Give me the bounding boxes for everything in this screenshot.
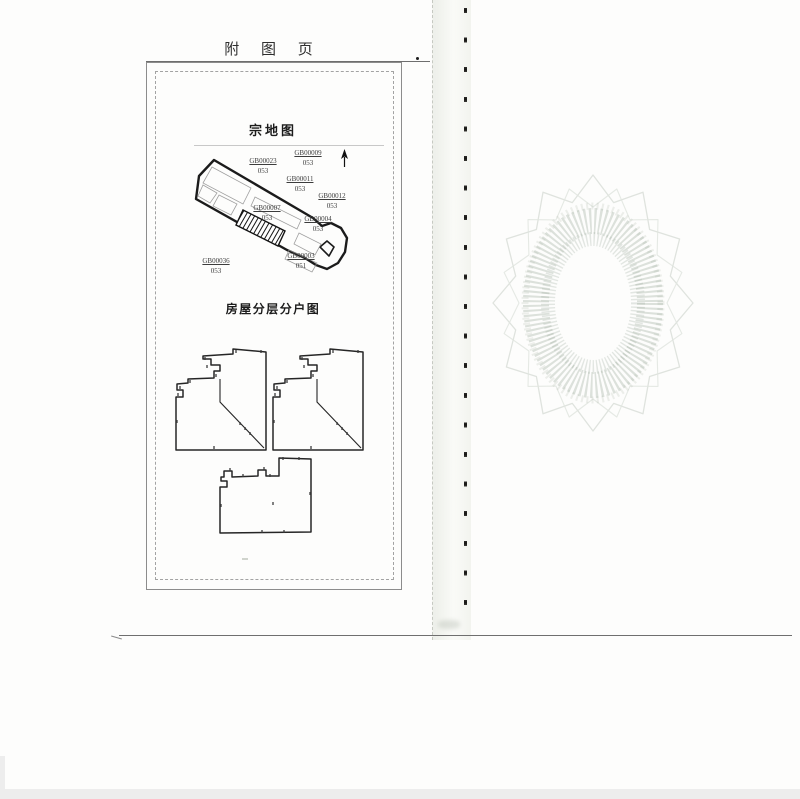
parcel-label: GB00003 051 <box>285 251 317 271</box>
parcel-code: GB00023 <box>247 156 279 166</box>
parcel-number: 053 <box>284 184 316 194</box>
scan-crease-line <box>194 145 384 146</box>
parcel-code: GB00009 <box>292 148 324 158</box>
parcel-number: 053 <box>200 266 232 276</box>
parcel-number: 053 <box>292 158 324 168</box>
ink-dot <box>416 57 419 60</box>
parcel-number: 053 <box>251 213 283 223</box>
parcel-code: GB00011 <box>284 174 316 184</box>
parcel-number: 053 <box>247 166 279 176</box>
parcel-number: 053 <box>316 201 348 211</box>
floor-plan-title: 房屋分层分户图 <box>146 300 400 317</box>
watermark-rosette <box>493 175 693 431</box>
parcel-map-title: 宗地图 <box>146 120 400 139</box>
scan-smudge <box>438 620 460 629</box>
parcel-number: 053 <box>302 224 334 234</box>
parcel-label: GB00007 053 <box>251 203 283 223</box>
parcel-code: GB00004 <box>302 214 334 224</box>
page-bottom-edge-shadow <box>0 789 800 799</box>
lower-page-rule <box>119 635 792 636</box>
parcel-code: GB00036 <box>200 256 232 266</box>
parcel-number: 051 <box>285 261 317 271</box>
parcel-label: GB00023 053 <box>247 156 279 176</box>
parcel-label: GB00036 053 <box>200 256 232 276</box>
parcel-label: GB00004 053 <box>302 214 334 234</box>
parcel-label: GB00012 053 <box>316 191 348 211</box>
parcel-label: GB00011 053 <box>284 174 316 194</box>
parcel-code: GB00007 <box>251 203 283 213</box>
binding-stitches <box>464 8 467 620</box>
parcel-code: GB00003 <box>285 251 317 261</box>
sheet-inner-dashed-border <box>155 71 394 580</box>
parcel-label: GB00009 053 <box>292 148 324 168</box>
page-title: 附 图 页 <box>146 38 400 59</box>
parcel-code: GB00012 <box>316 191 348 201</box>
page-left-edge-shadow <box>0 756 5 790</box>
scanned-certificate-page: 附 图 页 宗地图 房屋分层分户图 <box>0 0 800 799</box>
lower-page-rule-curl <box>111 636 122 640</box>
